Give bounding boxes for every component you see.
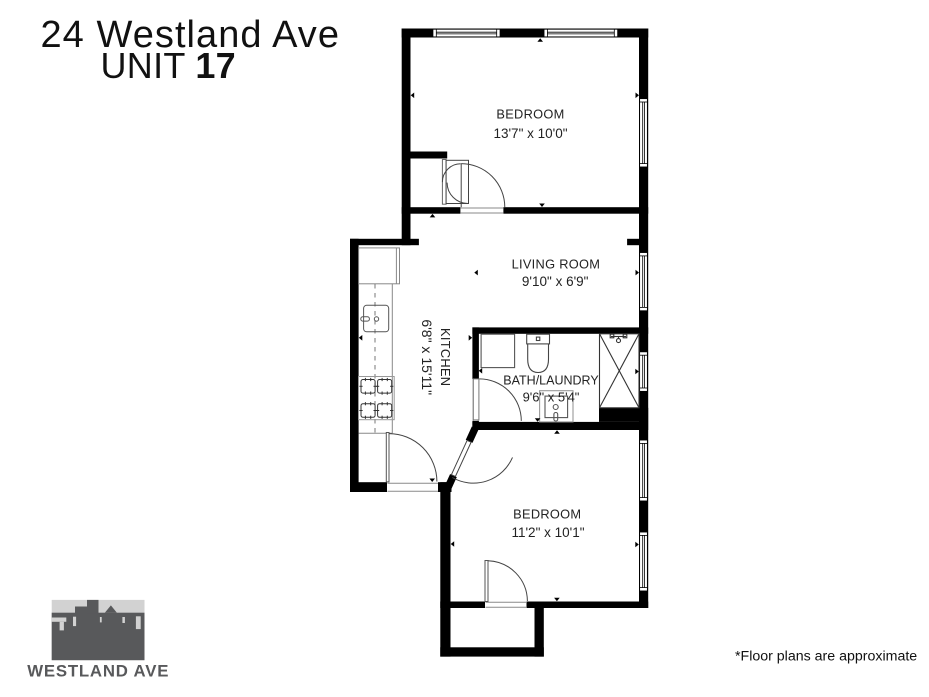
svg-text:LIVING ROOM: LIVING ROOM — [512, 257, 601, 272]
svg-text:BATH/LAUNDRY: BATH/LAUNDRY — [503, 373, 599, 387]
svg-text:BEDROOM: BEDROOM — [496, 106, 564, 121]
svg-text:9'6" x 5'4": 9'6" x 5'4" — [523, 390, 580, 405]
svg-text:KITCHEN: KITCHEN — [438, 328, 453, 386]
svg-text:6'8" x 15'11": 6'8" x 15'11" — [419, 319, 435, 395]
svg-text:WESTLAND AVE: WESTLAND AVE — [27, 662, 169, 681]
svg-text:BEDROOM: BEDROOM — [513, 507, 581, 522]
svg-text:9'10" x 6'9": 9'10" x 6'9" — [522, 274, 589, 289]
svg-text:UNIT 17: UNIT 17 — [101, 45, 237, 86]
svg-text:13'7" x 10'0": 13'7" x 10'0" — [493, 126, 567, 141]
svg-text:*Floor plans are approximate: *Floor plans are approximate — [735, 649, 917, 665]
svg-text:11'2" x 10'1": 11'2" x 10'1" — [511, 525, 584, 540]
